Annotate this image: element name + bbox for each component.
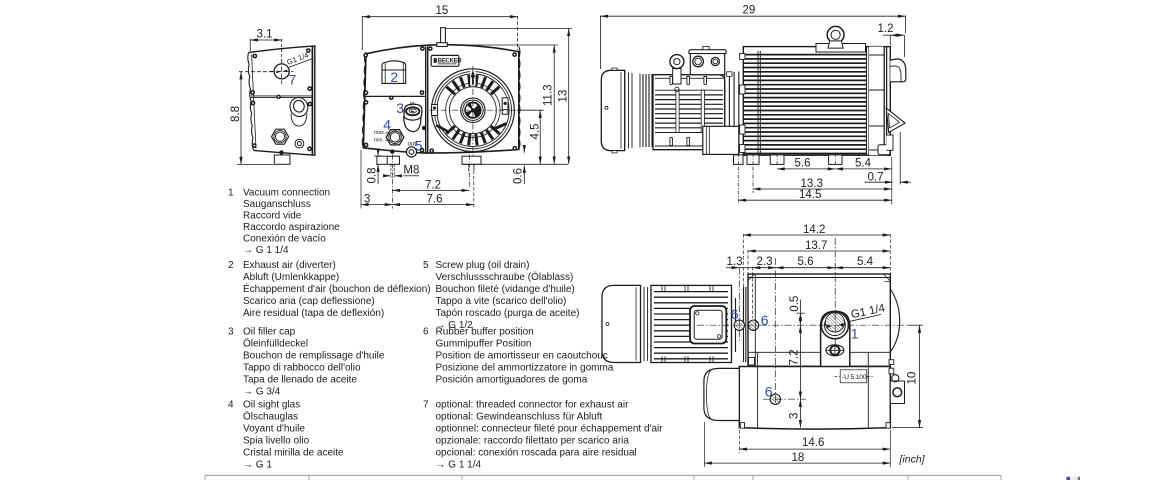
svg-text:Exhaust air (diverter): Exhaust air (diverter) — [243, 260, 336, 271]
svg-text:3: 3 — [789, 413, 801, 419]
svg-text:4: 4 — [383, 116, 391, 132]
svg-text:Spia livello olio: Spia livello olio — [243, 436, 310, 447]
svg-text:5.6: 5.6 — [795, 157, 811, 169]
svg-text:Tapa de llenado de aceite: Tapa de llenado de aceite — [243, 375, 357, 386]
svg-text:7: 7 — [289, 72, 297, 88]
svg-text:[inch]: [inch] — [899, 454, 926, 466]
svg-text:optional: threaded connector f: optional: threaded connector for exhaust… — [436, 400, 630, 411]
svg-text:Verschlussschraube (Ölablass): Verschlussschraube (Ölablass) — [436, 271, 574, 283]
svg-text:Voyant d'huile: Voyant d'huile — [243, 424, 305, 435]
svg-text:optional: Gewindeanschluss für: optional: Gewindeanschluss für Abluft — [436, 412, 603, 423]
svg-text:→ G 3/4: → G 3/4 — [243, 387, 281, 398]
svg-text:Échappement d'air (bouchon de: Échappement d'air (bouchon de déflexion) — [243, 282, 431, 295]
svg-text:0.7: 0.7 — [868, 172, 884, 184]
svg-text:8.8: 8.8 — [230, 106, 242, 122]
svg-text:1.3: 1.3 — [727, 256, 743, 268]
svg-text:13.7: 13.7 — [805, 240, 827, 252]
svg-text:7: 7 — [423, 400, 429, 411]
svg-text:Posizione del ammortizzatore i: Posizione del ammortizzatore in gomma — [436, 363, 614, 374]
svg-text:in: in — [410, 101, 415, 107]
svg-text:7.2: 7.2 — [425, 179, 441, 191]
svg-text:Oil sight glas: Oil sight glas — [243, 400, 300, 411]
svg-text:Tapón roscado (purga de aceite: Tapón roscado (purga de aceite) — [436, 308, 580, 319]
svg-text:13: 13 — [557, 90, 569, 103]
svg-text:Screw plug (oil drain): Screw plug (oil drain) — [436, 260, 530, 271]
svg-text:14.2: 14.2 — [803, 224, 825, 236]
svg-text:6: 6 — [731, 306, 739, 322]
svg-text:min.: min. — [374, 138, 384, 144]
svg-text:13.3: 13.3 — [801, 178, 823, 190]
svg-text:5: 5 — [423, 260, 429, 271]
svg-text:18: 18 — [792, 452, 805, 464]
svg-text:Scarico aria (cap deflessione): Scarico aria (cap deflessione) — [243, 296, 375, 307]
svg-text:14.5: 14.5 — [799, 189, 821, 201]
svg-text:Position de amortisseur en cao: Position de amortisseur en caoutchouc — [436, 351, 608, 362]
svg-text:4.5: 4.5 — [530, 124, 542, 140]
svg-text:Conexión de vacío: Conexión de vacío — [243, 234, 326, 245]
svg-text:3.1: 3.1 — [257, 29, 273, 41]
svg-text:5.4: 5.4 — [855, 157, 872, 169]
svg-text:2: 2 — [228, 260, 234, 271]
svg-text:0.8: 0.8 — [367, 168, 379, 184]
svg-text:1.2: 1.2 — [878, 23, 894, 35]
svg-text:→ G 1 1/4: → G 1 1/4 — [436, 460, 482, 471]
svg-text:3: 3 — [364, 194, 370, 206]
svg-text:Bouchon de remplissage d'huile: Bouchon de remplissage d'huile — [243, 351, 385, 362]
svg-text:Öleinfülldeckel: Öleinfülldeckel — [243, 338, 308, 350]
svg-text:7.2: 7.2 — [789, 350, 801, 366]
svg-text:Ölschauglas: Ölschauglas — [243, 411, 298, 423]
svg-text:Tappo a vite (scarico dell'oli: Tappo a vite (scarico dell'olio) — [436, 296, 567, 307]
svg-text:M8: M8 — [403, 164, 419, 176]
svg-text:Sauganschluss: Sauganschluss — [243, 199, 311, 210]
svg-text:6: 6 — [423, 327, 429, 338]
svg-text:Aire residual (tapa de deflexi: Aire residual (tapa de deflexión) — [243, 308, 384, 319]
svg-text:11.3: 11.3 — [543, 84, 555, 106]
svg-text:Vacuum connection: Vacuum connection — [243, 188, 330, 199]
svg-text:2.3: 2.3 — [757, 256, 773, 268]
svg-text:Cristal mirilla de aceite: Cristal mirilla de aceite — [243, 448, 344, 459]
svg-text:Raccordo aspirazione: Raccordo aspirazione — [243, 222, 340, 233]
svg-text:0.5: 0.5 — [789, 296, 801, 312]
svg-text:→ G 1: → G 1 — [243, 460, 272, 471]
svg-text:5.6: 5.6 — [798, 256, 814, 268]
svg-text:7.6: 7.6 — [427, 194, 443, 206]
svg-text:15: 15 — [436, 5, 449, 17]
svg-text:optionnel: connecteur fileté p: optionnel: connecteur fileté pour échapp… — [436, 424, 664, 435]
svg-text:3: 3 — [228, 327, 234, 338]
svg-text:2: 2 — [390, 69, 398, 85]
svg-text:29: 29 — [743, 5, 756, 17]
svg-text:Tappo di rabbocco dell'olio: Tappo di rabbocco dell'olio — [243, 363, 361, 374]
svg-text:14.6: 14.6 — [802, 437, 824, 449]
svg-text:3: 3 — [396, 100, 404, 116]
svg-text:Bouchon fileté (vidange d'huil: Bouchon fileté (vidange d'huile) — [436, 284, 575, 295]
svg-text:6: 6 — [765, 384, 773, 400]
svg-text:opcional: conexión roscada par: opcional: conexión roscada para aire res… — [436, 448, 637, 459]
svg-text:1: 1 — [851, 326, 859, 342]
svg-text:Oil filler cap: Oil filler cap — [243, 327, 296, 338]
svg-text:5.4: 5.4 — [857, 256, 874, 268]
svg-text:Raccord vide: Raccord vide — [243, 211, 302, 222]
svg-text:4: 4 — [228, 400, 234, 411]
svg-text:Posición amortiguadores de gom: Posición amortiguadores de goma — [436, 375, 588, 386]
svg-text:Abluft (Umlenkkappe): Abluft (Umlenkkappe) — [243, 272, 339, 283]
svg-text:Gummipuffer Position: Gummipuffer Position — [436, 339, 532, 350]
svg-text:→ G 1 1/4: → G 1 1/4 — [243, 245, 289, 256]
svg-text:0.6: 0.6 — [513, 168, 525, 184]
svg-text:opzionale: raccordo filettato: opzionale: raccordo filettato per scaric… — [436, 436, 630, 447]
svg-text:1: 1 — [228, 188, 234, 199]
svg-text:6: 6 — [761, 312, 769, 328]
svg-text:Rubber buffer position: Rubber buffer position — [436, 327, 534, 338]
svg-text:10: 10 — [907, 372, 919, 385]
